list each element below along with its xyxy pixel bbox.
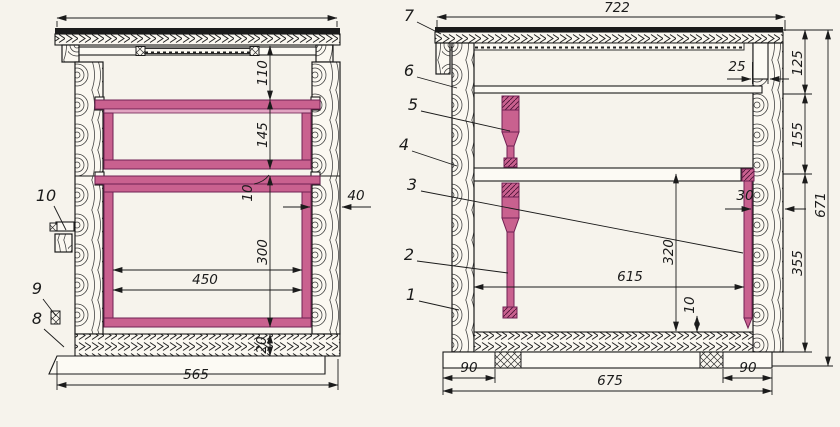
callout-4-leader: [412, 151, 457, 166]
left-subroof-cleat-left: [136, 47, 145, 56]
nest-frame-top-bar-2: [104, 184, 311, 192]
callout-2-label: 2: [404, 245, 414, 264]
dim-155-label: 155: [790, 122, 806, 148]
left-floor-board: [75, 334, 340, 356]
right-roof-rim-left: [436, 43, 450, 74]
right-floor: [443, 332, 772, 368]
left-roof-top-board: [55, 28, 340, 34]
callout-4-label: 4: [399, 135, 409, 154]
entrance-latch-knob: [50, 223, 57, 231]
dim-320-label: 320: [661, 239, 677, 265]
nest-frame-side-bar-narrow: [507, 232, 514, 307]
callout-6-leader: [417, 77, 457, 88]
super-frame-side-bar-taper: [502, 132, 519, 146]
dim-675-label: 675: [597, 373, 623, 389]
dim-722-label: 722: [604, 0, 630, 16]
foot-left: [495, 352, 521, 368]
beehive-sections-svg: 110 145 10 300 450 20 565 40 10 9: [0, 0, 840, 427]
callout-5-label: 5: [408, 95, 418, 114]
division-board-hanger: [742, 169, 754, 181]
right-roof-deck: [435, 32, 783, 43]
nest-frame-side-bar-left: [104, 192, 113, 318]
right-roof-top-board: [435, 27, 783, 32]
right-super-frame: [502, 96, 519, 167]
super-frame-side-bar-right: [302, 113, 311, 160]
inner-cover-board: [474, 86, 762, 93]
callout-3-label: 3: [407, 175, 417, 194]
entrance-lower-support: [51, 311, 60, 324]
box-joint-rim: [474, 168, 753, 181]
dim-30-label: 30: [736, 188, 753, 204]
entrance-latch-plate: [56, 222, 74, 231]
foot-right: [700, 352, 723, 368]
right-subroof-canvas: [444, 43, 744, 50]
nest-frame-side-bar-taper: [502, 218, 519, 232]
super-frame-bottom-bar: [104, 160, 311, 169]
super-frame-side-bar-narrow: [507, 146, 514, 159]
super-frame-top-bar: [95, 100, 320, 109]
dim-671-label: 671: [813, 192, 829, 218]
left-roof-deck: [55, 34, 340, 45]
dim-355-label: 355: [790, 250, 806, 276]
dim-40-label: 40: [347, 188, 364, 204]
dim-300-label: 300: [255, 239, 271, 265]
left-view-cross-section: 110 145 10 300 450 20 565 40 10 9: [32, 18, 371, 390]
left-super-frames: [95, 100, 320, 169]
dim-450-label: 450: [192, 272, 218, 288]
nest-frame-bottom-bar-section: [503, 307, 517, 318]
left-entrance-hardware: [50, 222, 74, 324]
dim-90l-label: 90: [460, 360, 477, 376]
dim-565-label: 565: [183, 367, 209, 383]
left-roof-rim-left: [62, 45, 79, 62]
dim-90r-label: 90: [739, 360, 756, 376]
dim-110-label: 110: [255, 60, 271, 86]
left-subroof-cleat-right: [250, 47, 259, 56]
right-floor-board: [474, 332, 753, 352]
dim-145-label: 145: [255, 122, 271, 148]
callout-9-leader: [43, 299, 56, 316]
left-subroof-canvas: [145, 49, 250, 54]
dim-615-label: 615: [617, 269, 643, 285]
left-nest-frames: [95, 176, 320, 327]
right-wall-rabbet-top: [753, 43, 768, 79]
super-frame-bottom-bar-section: [504, 158, 517, 167]
nest-frame-side-bar-right: [302, 192, 311, 318]
dim-25-label: 25: [728, 59, 745, 75]
left-roof: [55, 28, 340, 62]
super-frame-side-bar-left: [104, 113, 113, 160]
callout-7-label: 7: [404, 6, 415, 25]
callout-1-label: 1: [406, 285, 416, 304]
right-nest-frame: [502, 183, 519, 318]
callout-9-label: 9: [32, 279, 42, 298]
dim-10-label: 10: [682, 296, 698, 313]
nest-frame-top-bar-section: [502, 183, 519, 197]
dim-gap10-label: 10: [240, 184, 256, 201]
entrance-landing-block: [55, 234, 72, 252]
callout-8-label: 8: [32, 309, 42, 328]
nest-frame-top-bar: [95, 176, 320, 184]
dim-125-label: 125: [790, 50, 806, 76]
technical-drawing: 110 145 10 300 450 20 565 40 10 9: [0, 0, 840, 427]
left-callouts: 10 9 8: [32, 186, 66, 347]
nest-frame-bottom-bar: [104, 318, 311, 327]
callout-8-leader: [44, 329, 64, 347]
callout-10-label: 10: [36, 186, 56, 205]
super-frame-side-bar-wide: [502, 110, 519, 132]
right-view-longitudinal-section: 722 25 125 155 355 671 30 320: [399, 0, 833, 395]
callout-6-label: 6: [404, 61, 414, 80]
super-frame-top-bar-section: [502, 96, 519, 110]
dim-20-label: 20: [254, 336, 270, 353]
left-roof-rim-right: [316, 45, 333, 62]
super-frame-top-strip: [104, 109, 311, 113]
division-board-tip: [744, 318, 752, 328]
